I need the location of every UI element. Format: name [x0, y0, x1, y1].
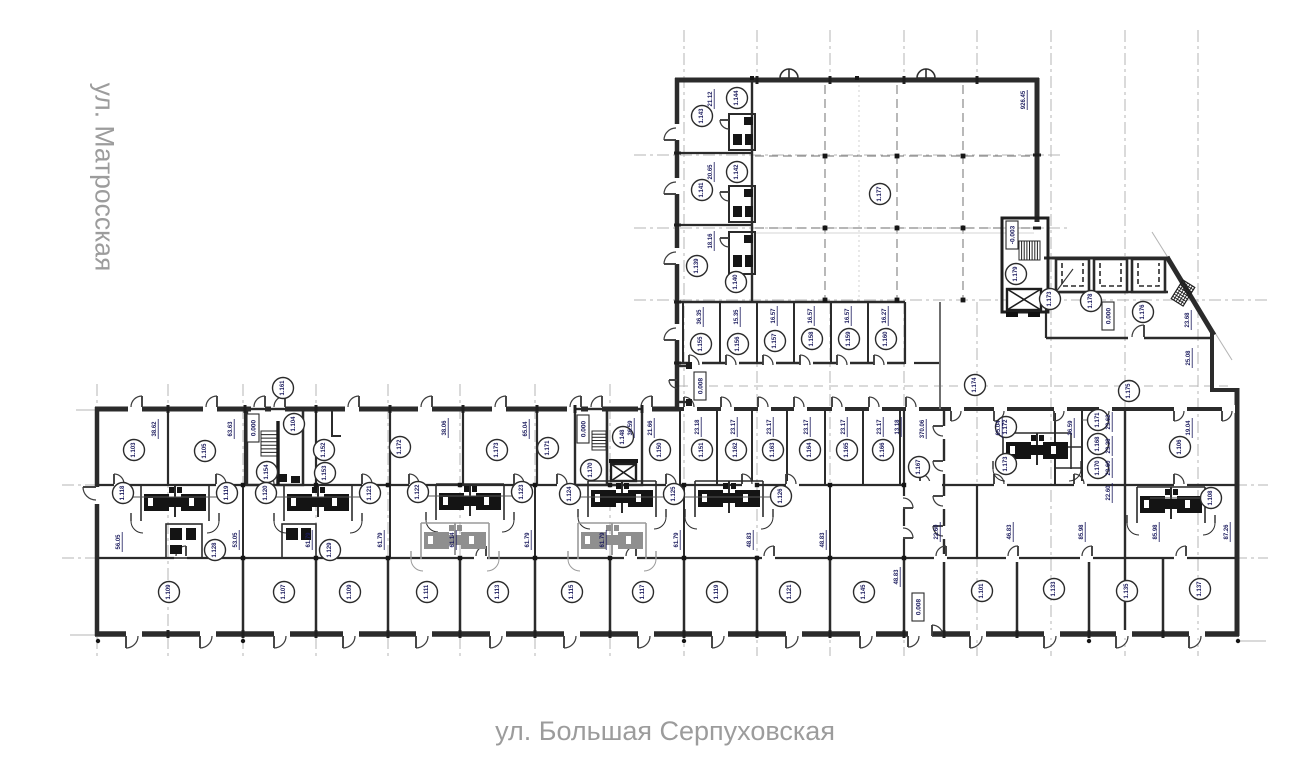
- svg-text:1.179: 1.179: [1013, 266, 1019, 282]
- svg-text:16.57: 16.57: [808, 308, 814, 324]
- svg-text:1.104: 1.104: [291, 416, 297, 432]
- svg-text:23.17: 23.17: [841, 419, 847, 435]
- svg-text:1.103: 1.103: [131, 442, 137, 458]
- svg-text:1.126: 1.126: [778, 488, 784, 504]
- svg-text:1.140: 1.140: [733, 274, 739, 290]
- svg-text:1.118: 1.118: [120, 485, 126, 500]
- svg-text:1.120: 1.120: [263, 485, 269, 501]
- svg-text:48.83: 48.83: [894, 569, 900, 585]
- svg-text:21.66: 21.66: [648, 420, 654, 436]
- svg-text:1.172: 1.172: [1003, 419, 1009, 435]
- svg-text:1.174: 1.174: [972, 377, 978, 393]
- svg-text:1.101: 1.101: [979, 583, 985, 599]
- svg-text:18.16: 18.16: [708, 233, 714, 249]
- svg-text:1.129: 1.129: [327, 542, 333, 558]
- svg-text:36.59: 36.59: [1068, 420, 1074, 436]
- svg-text:1.157: 1.157: [772, 333, 778, 349]
- svg-text:1.143: 1.143: [699, 108, 705, 124]
- svg-text:16.57: 16.57: [845, 308, 851, 324]
- svg-text:ул. Большая Серпуховская: ул. Большая Серпуховская: [495, 716, 835, 746]
- svg-text:1.155: 1.155: [698, 336, 704, 352]
- svg-text:61.79: 61.79: [378, 532, 384, 548]
- svg-text:1.109: 1.109: [347, 584, 353, 600]
- svg-text:1.117: 1.117: [640, 584, 646, 599]
- svg-text:1.139: 1.139: [694, 258, 700, 274]
- svg-text:25.08: 25.08: [1186, 350, 1192, 366]
- svg-text:1.171: 1.171: [1095, 412, 1101, 428]
- svg-text:370.06: 370.06: [920, 419, 926, 438]
- svg-text:926.45: 926.45: [1021, 90, 1027, 109]
- svg-text:1.119: 1.119: [714, 584, 720, 599]
- svg-text:1.164: 1.164: [807, 442, 813, 458]
- svg-text:15.35: 15.35: [734, 309, 740, 325]
- svg-text:36.59: 36.59: [628, 420, 634, 436]
- svg-text:22.60: 22.60: [934, 524, 940, 540]
- svg-text:16.27: 16.27: [882, 308, 888, 324]
- svg-text:1.128: 1.128: [212, 542, 218, 558]
- svg-text:1.121: 1.121: [367, 485, 373, 501]
- svg-text:1.142: 1.142: [734, 164, 740, 180]
- svg-text:1.163: 1.163: [770, 442, 776, 458]
- svg-text:1.109: 1.109: [166, 584, 172, 600]
- svg-text:38.06: 38.06: [442, 420, 448, 436]
- svg-text:65.04: 65.04: [996, 420, 1002, 436]
- svg-text:1.178: 1.178: [1088, 293, 1094, 309]
- svg-text:61.79: 61.79: [306, 532, 312, 548]
- svg-text:0.000: 0.000: [1105, 307, 1112, 324]
- svg-text:-0.003: -0.003: [1009, 225, 1016, 244]
- svg-text:0.008: 0.008: [915, 598, 922, 615]
- svg-text:0.000: 0.000: [250, 419, 257, 436]
- svg-text:85.98: 85.98: [1153, 524, 1159, 540]
- svg-text:1.160: 1.160: [883, 331, 889, 347]
- svg-text:1.154: 1.154: [264, 464, 270, 480]
- svg-text:1.153: 1.153: [322, 465, 328, 481]
- svg-text:19.04: 19.04: [1186, 420, 1192, 436]
- svg-text:61.14: 61.14: [450, 532, 456, 548]
- svg-text:1.175: 1.175: [1126, 383, 1132, 399]
- svg-text:1.162: 1.162: [733, 442, 739, 458]
- svg-text:1.135: 1.135: [1124, 583, 1130, 599]
- svg-text:1.119: 1.119: [224, 485, 230, 500]
- svg-text:1.144: 1.144: [734, 90, 740, 106]
- svg-text:56.05: 56.05: [116, 534, 122, 550]
- svg-text:23.60: 23.60: [1106, 460, 1112, 476]
- svg-text:61.79: 61.79: [600, 532, 606, 548]
- svg-text:61.79: 61.79: [525, 532, 531, 548]
- svg-text:38.62: 38.62: [152, 421, 158, 437]
- svg-text:1.124: 1.124: [567, 486, 573, 502]
- svg-text:1.177: 1.177: [877, 186, 883, 202]
- svg-text:1.133: 1.133: [1051, 581, 1057, 597]
- svg-text:1.105: 1.105: [202, 443, 208, 459]
- svg-text:1.111: 1.111: [424, 584, 430, 599]
- svg-text:1.108: 1.108: [1208, 490, 1214, 506]
- svg-text:1.173: 1.173: [1003, 456, 1009, 472]
- svg-text:1.106: 1.106: [1177, 439, 1183, 455]
- svg-text:22.60: 22.60: [1106, 485, 1112, 501]
- svg-text:21.12: 21.12: [708, 91, 714, 107]
- svg-text:1.172: 1.172: [397, 439, 403, 455]
- svg-text:1.176: 1.176: [1140, 304, 1146, 320]
- svg-text:1.161: 1.161: [280, 380, 286, 396]
- svg-text:1.170: 1.170: [1095, 460, 1101, 476]
- svg-text:23.17: 23.17: [731, 419, 737, 435]
- svg-text:23.18: 23.18: [695, 419, 701, 435]
- svg-text:1.167: 1.167: [916, 459, 922, 475]
- svg-text:48.83: 48.83: [820, 532, 826, 548]
- svg-text:87.26: 87.26: [1224, 524, 1230, 540]
- svg-text:ул. Матросская: ул. Матросская: [90, 83, 120, 272]
- svg-text:1.171: 1.171: [545, 440, 551, 456]
- svg-text:1.145: 1.145: [861, 584, 867, 600]
- svg-text:1.141: 1.141: [699, 182, 705, 198]
- svg-text:23.68: 23.68: [1185, 312, 1191, 328]
- svg-text:53.05: 53.05: [233, 532, 239, 548]
- svg-text:1.173: 1.173: [1047, 291, 1053, 307]
- svg-text:23.17: 23.17: [767, 419, 773, 435]
- svg-text:1.165: 1.165: [844, 442, 850, 458]
- svg-text:1.115: 1.115: [569, 584, 575, 599]
- svg-text:23.38: 23.38: [1106, 438, 1112, 454]
- svg-text:1.107: 1.107: [281, 584, 287, 600]
- svg-text:0.000: 0.000: [580, 420, 587, 437]
- svg-text:1.150: 1.150: [657, 442, 663, 458]
- svg-text:23.62: 23.62: [1106, 414, 1112, 430]
- svg-text:23.17: 23.17: [877, 419, 883, 435]
- svg-text:20.65: 20.65: [708, 164, 714, 180]
- svg-text:1.156: 1.156: [735, 336, 741, 352]
- svg-text:65.04: 65.04: [523, 421, 529, 437]
- svg-text:63.63: 63.63: [228, 421, 234, 437]
- svg-text:1.113: 1.113: [495, 584, 501, 599]
- svg-text:1.173: 1.173: [494, 442, 500, 458]
- svg-text:1.123: 1.123: [519, 484, 525, 500]
- svg-text:1.148: 1.148: [620, 429, 626, 445]
- svg-text:1.159: 1.159: [846, 331, 852, 347]
- svg-text:85.98: 85.98: [1079, 524, 1085, 540]
- svg-text:48.83: 48.83: [747, 532, 753, 548]
- svg-text:1.125: 1.125: [671, 486, 677, 502]
- svg-text:1.122: 1.122: [415, 484, 421, 500]
- svg-text:1.170: 1.170: [588, 462, 594, 478]
- svg-text:1.166: 1.166: [880, 442, 886, 458]
- svg-text:1.152: 1.152: [321, 442, 327, 458]
- svg-text:1.151: 1.151: [699, 442, 705, 458]
- svg-text:13.18: 13.18: [895, 419, 901, 435]
- svg-text:1.137: 1.137: [1197, 581, 1203, 597]
- svg-text:1.168: 1.168: [1095, 436, 1101, 452]
- svg-text:46.83: 46.83: [1007, 524, 1013, 540]
- svg-text:23.17: 23.17: [804, 419, 810, 435]
- svg-text:0.008: 0.008: [697, 377, 704, 394]
- svg-text:1.121: 1.121: [787, 584, 793, 600]
- svg-text:16.57: 16.57: [771, 308, 777, 324]
- svg-text:36.35: 36.35: [697, 309, 703, 325]
- svg-text:1.158: 1.158: [809, 331, 815, 347]
- svg-text:61.79: 61.79: [674, 532, 680, 548]
